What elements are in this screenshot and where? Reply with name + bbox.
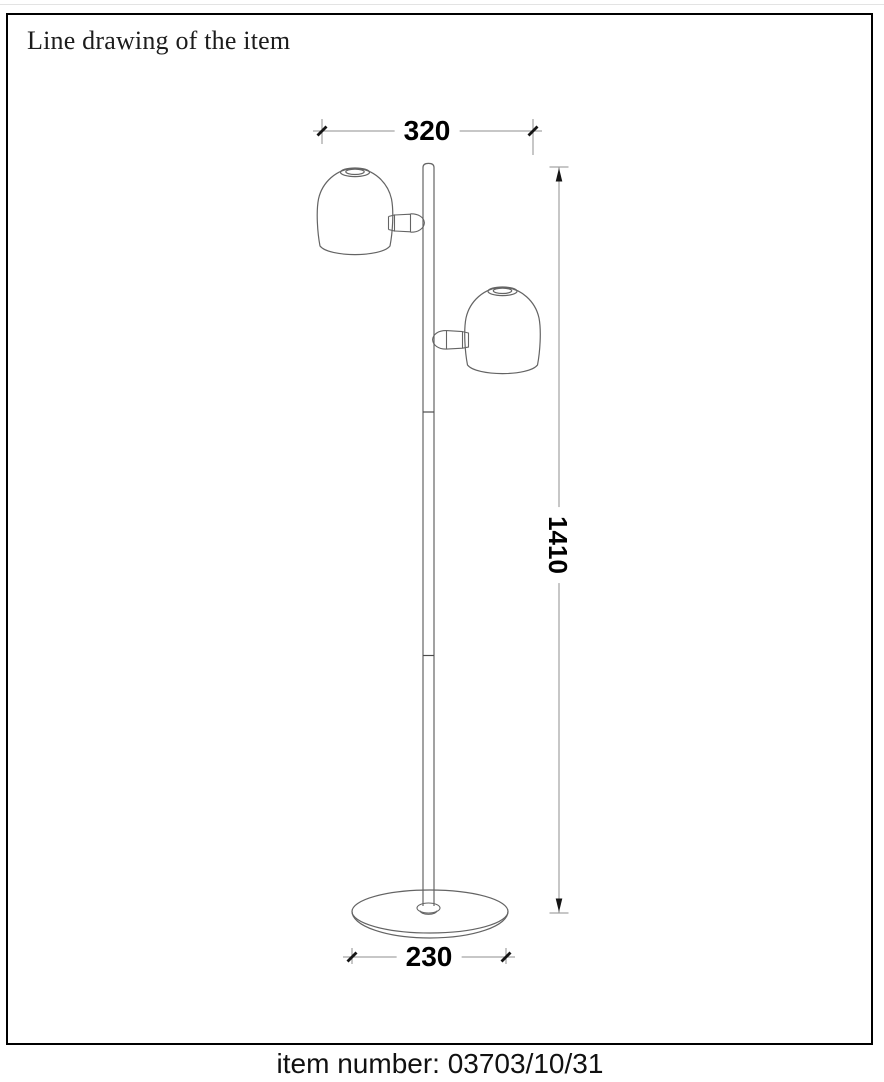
lamp-head-lower [465,287,541,374]
pole-joint-lines [423,412,434,656]
head-top-cap-inner [493,288,511,293]
lamp-head-upper [317,168,393,255]
dimension-label-height: 1410 [543,507,573,583]
head-top-cap-inner [346,169,364,174]
lamp-line-drawing [0,0,884,1082]
dimension-label-width: 320 [395,116,460,146]
item-number-caption: item number: 03703/10/31 [6,1048,874,1080]
lamp-pole [423,163,434,906]
dimension-label-base-diameter: 230 [397,942,462,972]
page: Line drawing of the item [0,0,884,1082]
pole-base-hub [417,903,440,914]
lamp-arm-upper [389,214,425,232]
lamp-arm-lower [433,330,469,349]
